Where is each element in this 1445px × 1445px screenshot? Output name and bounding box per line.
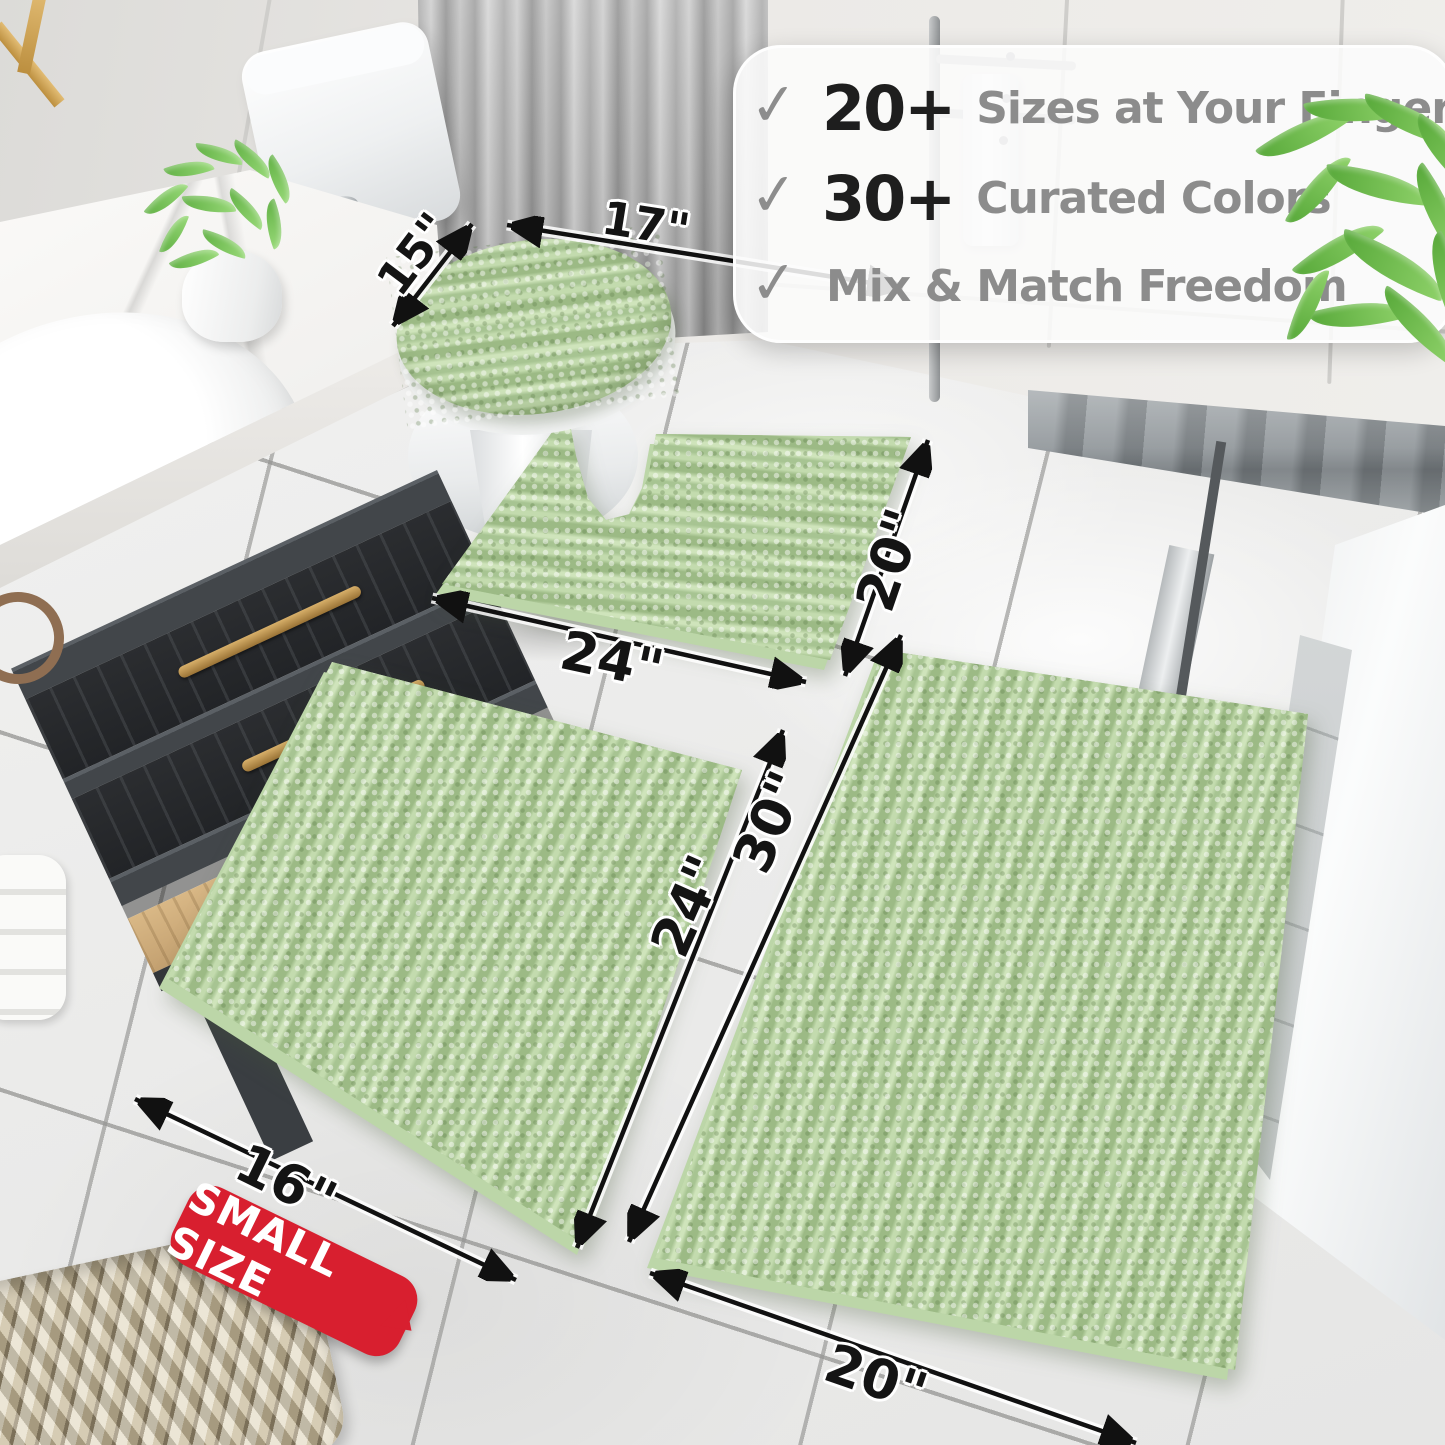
callout-label: Curated Colors — [976, 173, 1330, 224]
feature-callout: ✓ 20+ Sizes at Your Fingertips ✓ 30+ Cur… — [733, 45, 1445, 343]
callout-count: 20+ — [822, 72, 954, 145]
callout-label: Mix & Match Freedom — [826, 261, 1347, 312]
bathroom-rug-product-image: MUSQ — [0, 0, 1445, 1445]
callout-row-colors: ✓ 30+ Curated Colors — [750, 162, 1331, 234]
checkmark-icon: ✓ — [747, 67, 815, 140]
callout-count: 30+ — [822, 162, 954, 235]
checkmark-icon: ✓ — [747, 157, 815, 230]
checkmark-icon: ✓ — [747, 245, 815, 318]
callout-row-mix: ✓ Mix & Match Freedom — [750, 250, 1347, 322]
